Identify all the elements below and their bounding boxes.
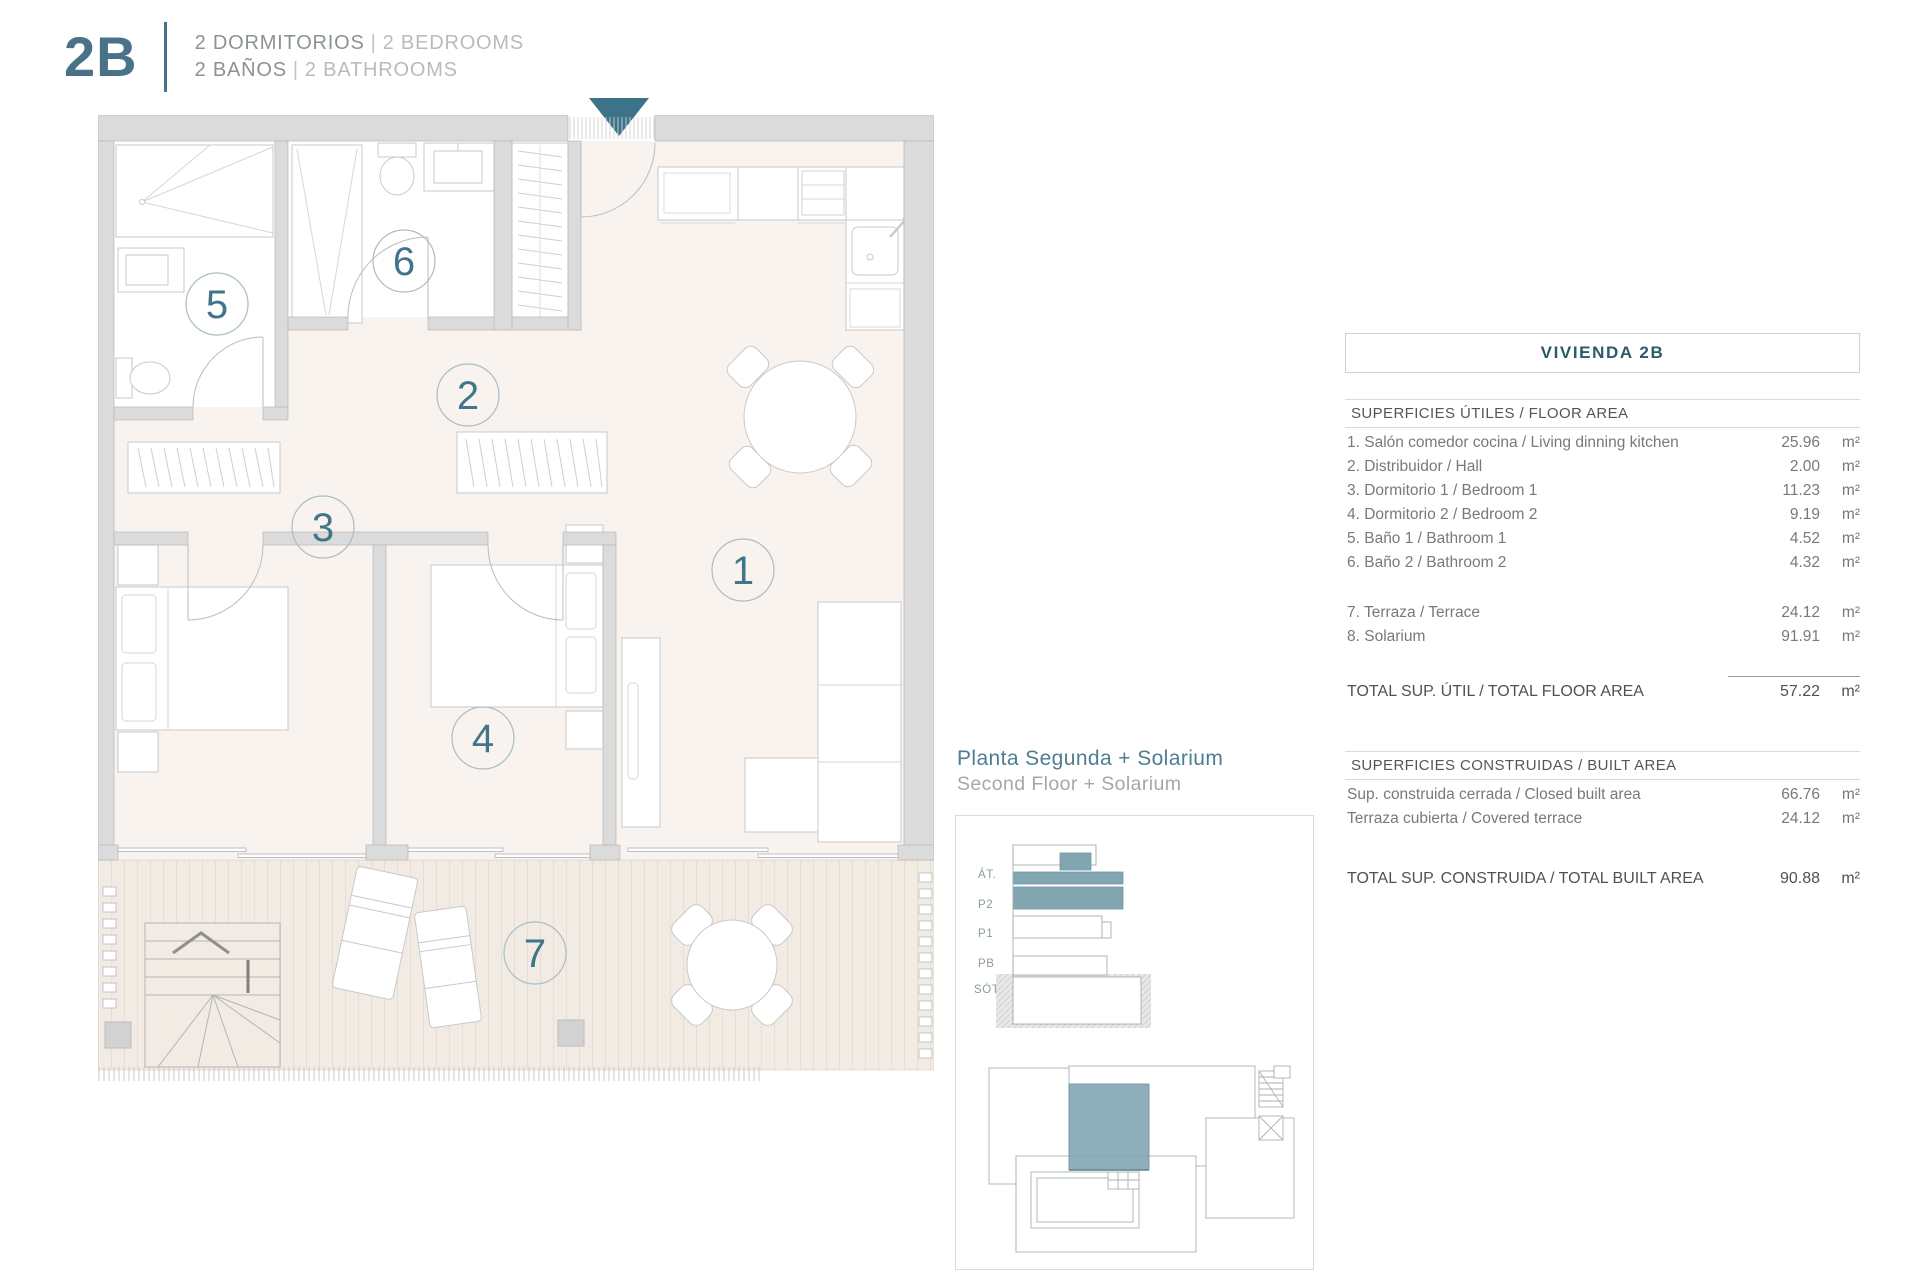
table-row: 8. Solarium 91.91 m² [1345,628,1860,652]
sheet-header: 2B 2 DORMITORIOS|2 BEDROOMS 2 BAÑOS|2 BA… [64,22,524,92]
location-inset: ÁT. P2 P1 PB SÓT. [955,815,1314,1270]
caption-es: Planta Segunda + Solarium [957,746,1223,772]
built-area-section-header: SUPERFICIES CONSTRUIDAS / BUILT AREA [1345,751,1860,780]
terrace-column [105,1022,131,1048]
table-row: 6. Baño 2 / Bathroom 2 4.32 m² [1345,554,1860,578]
dining-table [724,343,877,491]
unit-description: 2 DORMITORIOS|2 BEDROOMS 2 BAÑOS|2 BATHR… [195,32,524,82]
wardrobe-bedroom2 [457,432,607,493]
inset-svg: ÁT. P2 P1 PB SÓT. [956,816,1313,1269]
total-floor-area-row: TOTAL SUP. ÚTIL / TOTAL FLOOR AREA 57.22… [1345,677,1860,707]
floor-area-section-header: SUPERFICIES ÚTILES / FLOOR AREA [1345,399,1860,428]
site-plan [989,1066,1294,1252]
sink-bath1 [118,248,184,292]
toilet-bath2 [378,143,416,195]
terrace-column [558,1020,584,1046]
table-title-box: VIVIENDA 2B [1345,333,1860,373]
floor-plan-sheet: { "header": { "unit_code": "2B", "separa… [0,0,1920,1280]
room-label-4: 4 [472,717,494,761]
building-elevation: ÁT. P2 P1 PB SÓT. [974,845,1151,1028]
total-built-area-row: TOTAL SUP. CONSTRUIDA / TOTAL BUILT AREA… [1345,864,1860,894]
bedrooms-line: 2 DORMITORIOS|2 BEDROOMS [195,32,524,55]
room-label-2: 2 [457,374,479,418]
unit-code: 2B [64,29,138,85]
header-divider [164,22,167,92]
table-row: Sup. construida cerrada / Closed built a… [1345,786,1860,810]
shower-bath1 [116,145,273,237]
table-row: 5. Baño 1 / Bathroom 1 4.52 m² [1345,530,1860,554]
bathrooms-line: 2 BAÑOS|2 BATHROOMS [195,59,524,82]
floor-plan: 1 2 3 4 5 6 7 [98,115,934,1090]
room-label-7: 7 [524,932,546,976]
room-label-1: 1 [732,549,754,593]
inset-caption: Planta Segunda + Solarium Second Floor +… [957,746,1223,797]
elevation-label-atico: ÁT. [978,868,996,881]
tv-unit [622,638,660,827]
elevation-label-pb: PB [978,958,995,970]
floor-plan-svg: 1 2 3 4 5 6 7 [98,115,934,1090]
entrance-threshold [570,117,654,139]
table-row: 7. Terraza / Terrace 24.12 m² [1345,604,1860,628]
table-row: 1. Salón comedor cocina / Living dinning… [1345,434,1860,458]
room-label-3: 3 [312,506,334,550]
area-table: VIVIENDA 2B SUPERFICIES ÚTILES / FLOOR A… [1345,333,1860,894]
table-title: VIVIENDA 2B [1541,343,1665,363]
table-row: Terraza cubierta / Covered terrace 24.12… [1345,810,1860,834]
highlighted-unit [1069,1084,1149,1170]
room-label-5: 5 [206,283,228,327]
site-pool-grid [1108,1172,1139,1189]
room-label-6: 6 [393,240,415,284]
caption-en: Second Floor + Solarium [957,772,1223,796]
elevation-label-p2: P2 [978,899,993,911]
shower-bath2 [292,145,362,323]
table-row: 2. Distribuidor / Hall 2.00 m² [1345,458,1860,482]
elevation-label-p1: P1 [978,928,993,940]
terrace-stairs [145,923,280,1067]
terrace-table [668,901,796,1029]
site-elevator [1259,1116,1283,1140]
table-row: 4. Dormitorio 2 / Bedroom 2 9.19 m² [1345,506,1860,530]
terrace-edge-hatch [98,1067,760,1081]
wardrobe-bedroom1 [128,442,280,493]
sink-bath2 [424,143,494,191]
table-row: 3. Dormitorio 1 / Bedroom 1 11.23 m² [1345,482,1860,506]
